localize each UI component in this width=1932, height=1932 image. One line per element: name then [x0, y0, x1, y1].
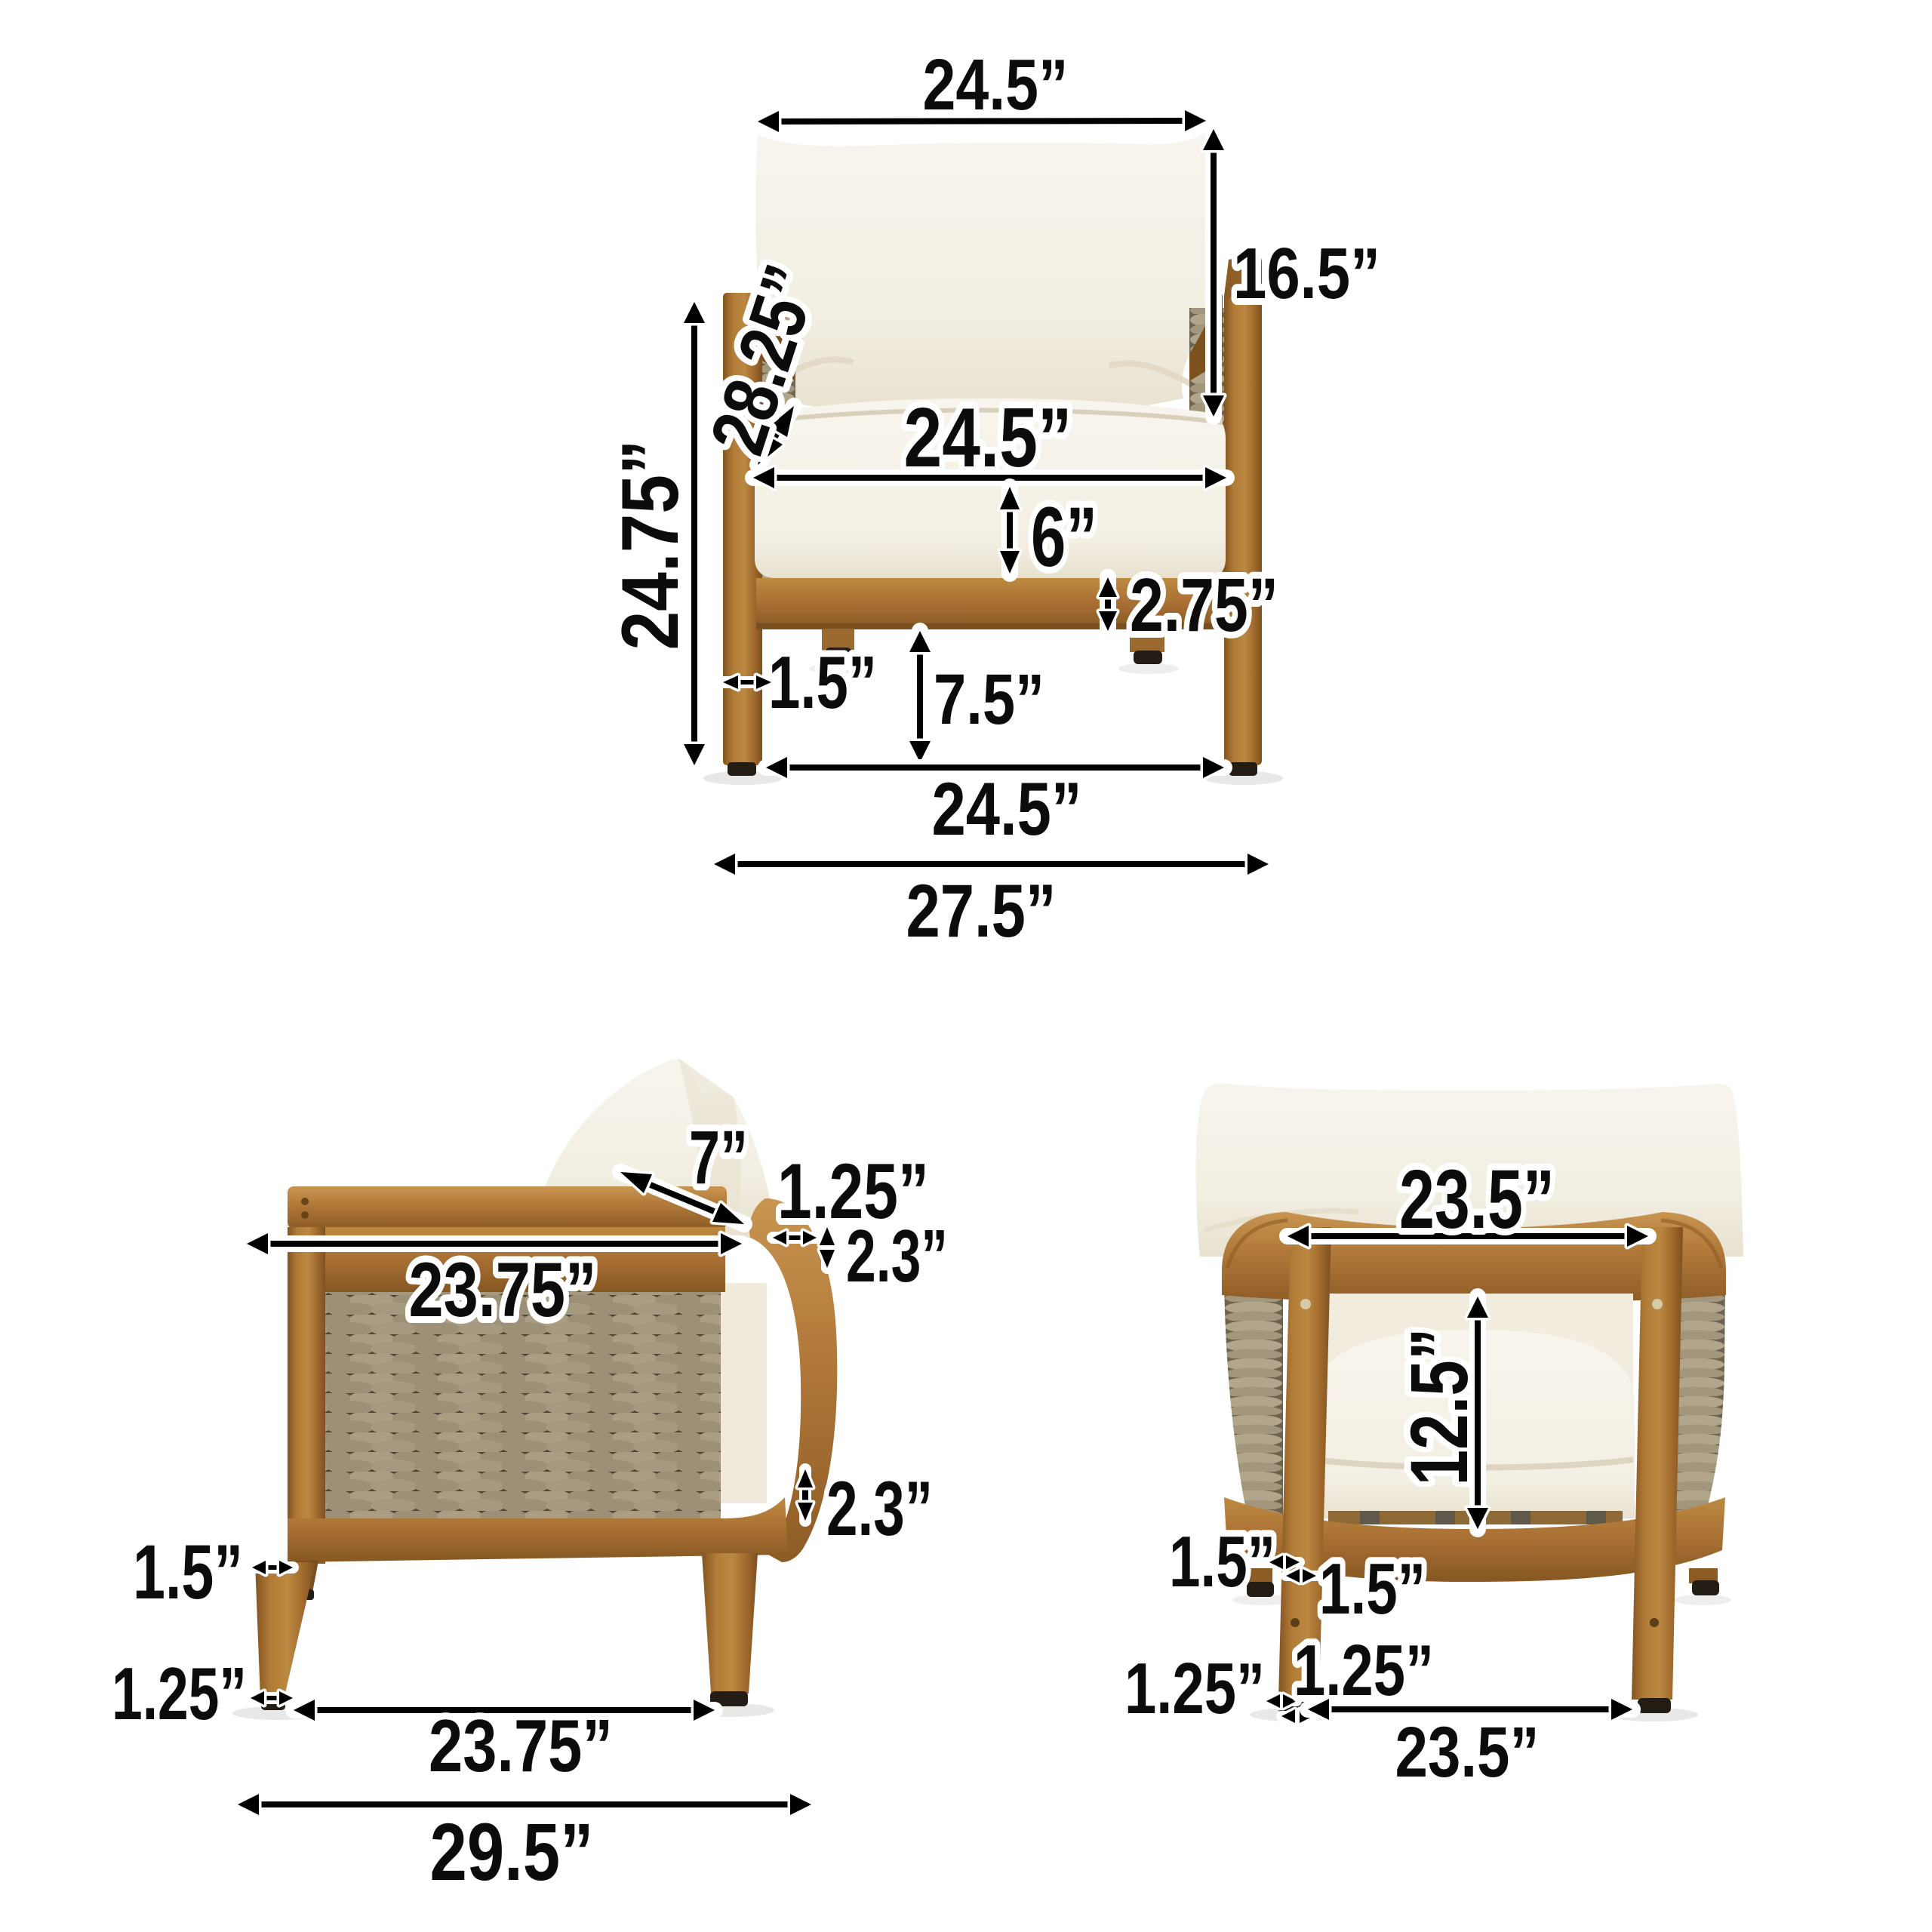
- svg-text:1.25”: 1.25”: [112, 1652, 247, 1735]
- svg-text:1.5”: 1.5”: [133, 1529, 243, 1615]
- svg-text:23.5”: 23.5”: [1399, 1153, 1555, 1246]
- svg-text:7”: 7”: [689, 1115, 748, 1200]
- svg-text:1.5”: 1.5”: [1169, 1521, 1275, 1602]
- svg-text:1.5”: 1.5”: [768, 641, 877, 724]
- svg-text:6”: 6”: [1031, 490, 1097, 584]
- svg-text:24.5”: 24.5”: [904, 391, 1072, 485]
- svg-text:24.5”: 24.5”: [932, 767, 1082, 851]
- svg-text:2.3”: 2.3”: [846, 1214, 948, 1297]
- svg-text:23.75”: 23.75”: [409, 1247, 597, 1333]
- svg-text:12.5”: 12.5”: [1393, 1328, 1484, 1486]
- svg-text:1.25”: 1.25”: [1124, 1648, 1265, 1729]
- svg-text:29.5”: 29.5”: [430, 1806, 594, 1897]
- svg-text:27.5”: 27.5”: [906, 869, 1057, 952]
- svg-text:1.25”: 1.25”: [1294, 1630, 1434, 1711]
- svg-text:24.75”: 24.75”: [605, 440, 695, 651]
- svg-text:2.3”: 2.3”: [826, 1466, 933, 1552]
- svg-text:7.5”: 7.5”: [934, 660, 1044, 740]
- svg-text:1.5”: 1.5”: [1319, 1549, 1426, 1629]
- svg-text:23.5”: 23.5”: [1395, 1712, 1540, 1792]
- svg-text:24.5”: 24.5”: [923, 45, 1069, 125]
- svg-text:2.75”: 2.75”: [1130, 563, 1278, 648]
- svg-text:23.75”: 23.75”: [429, 1704, 613, 1787]
- svg-text:16.5”: 16.5”: [1233, 233, 1380, 314]
